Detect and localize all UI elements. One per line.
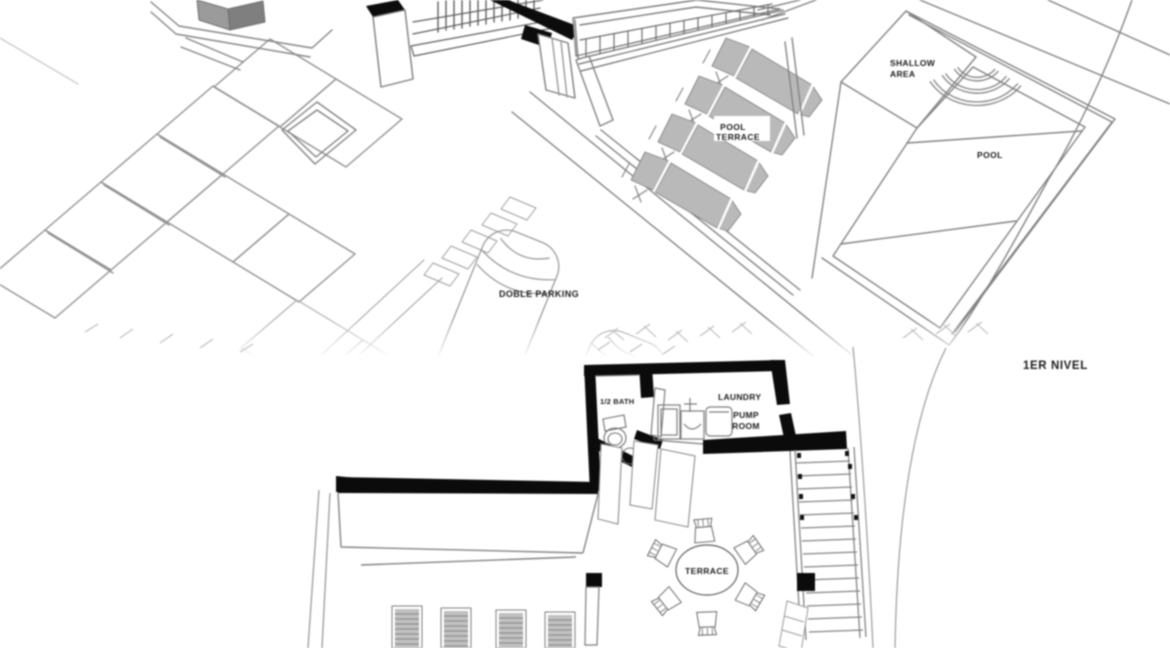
svg-text:ROOM: ROOM xyxy=(732,421,760,431)
svg-text:DOBLE PARKING: DOBLE PARKING xyxy=(499,289,579,299)
svg-text:TERRACE: TERRACE xyxy=(685,566,729,576)
svg-text:SHALLOW: SHALLOW xyxy=(890,58,936,68)
svg-text:POOL: POOL xyxy=(720,122,746,132)
svg-text:1ER NIVEL: 1ER NIVEL xyxy=(1023,360,1088,372)
svg-text:LAUNDRY: LAUNDRY xyxy=(718,392,761,402)
svg-text:TERRACE: TERRACE xyxy=(716,132,760,142)
svg-text:AREA: AREA xyxy=(890,69,915,79)
svg-text:POOL: POOL xyxy=(977,150,1003,160)
svg-text:PUMP: PUMP xyxy=(733,410,759,420)
svg-text:1/2 BATH: 1/2 BATH xyxy=(600,397,634,406)
